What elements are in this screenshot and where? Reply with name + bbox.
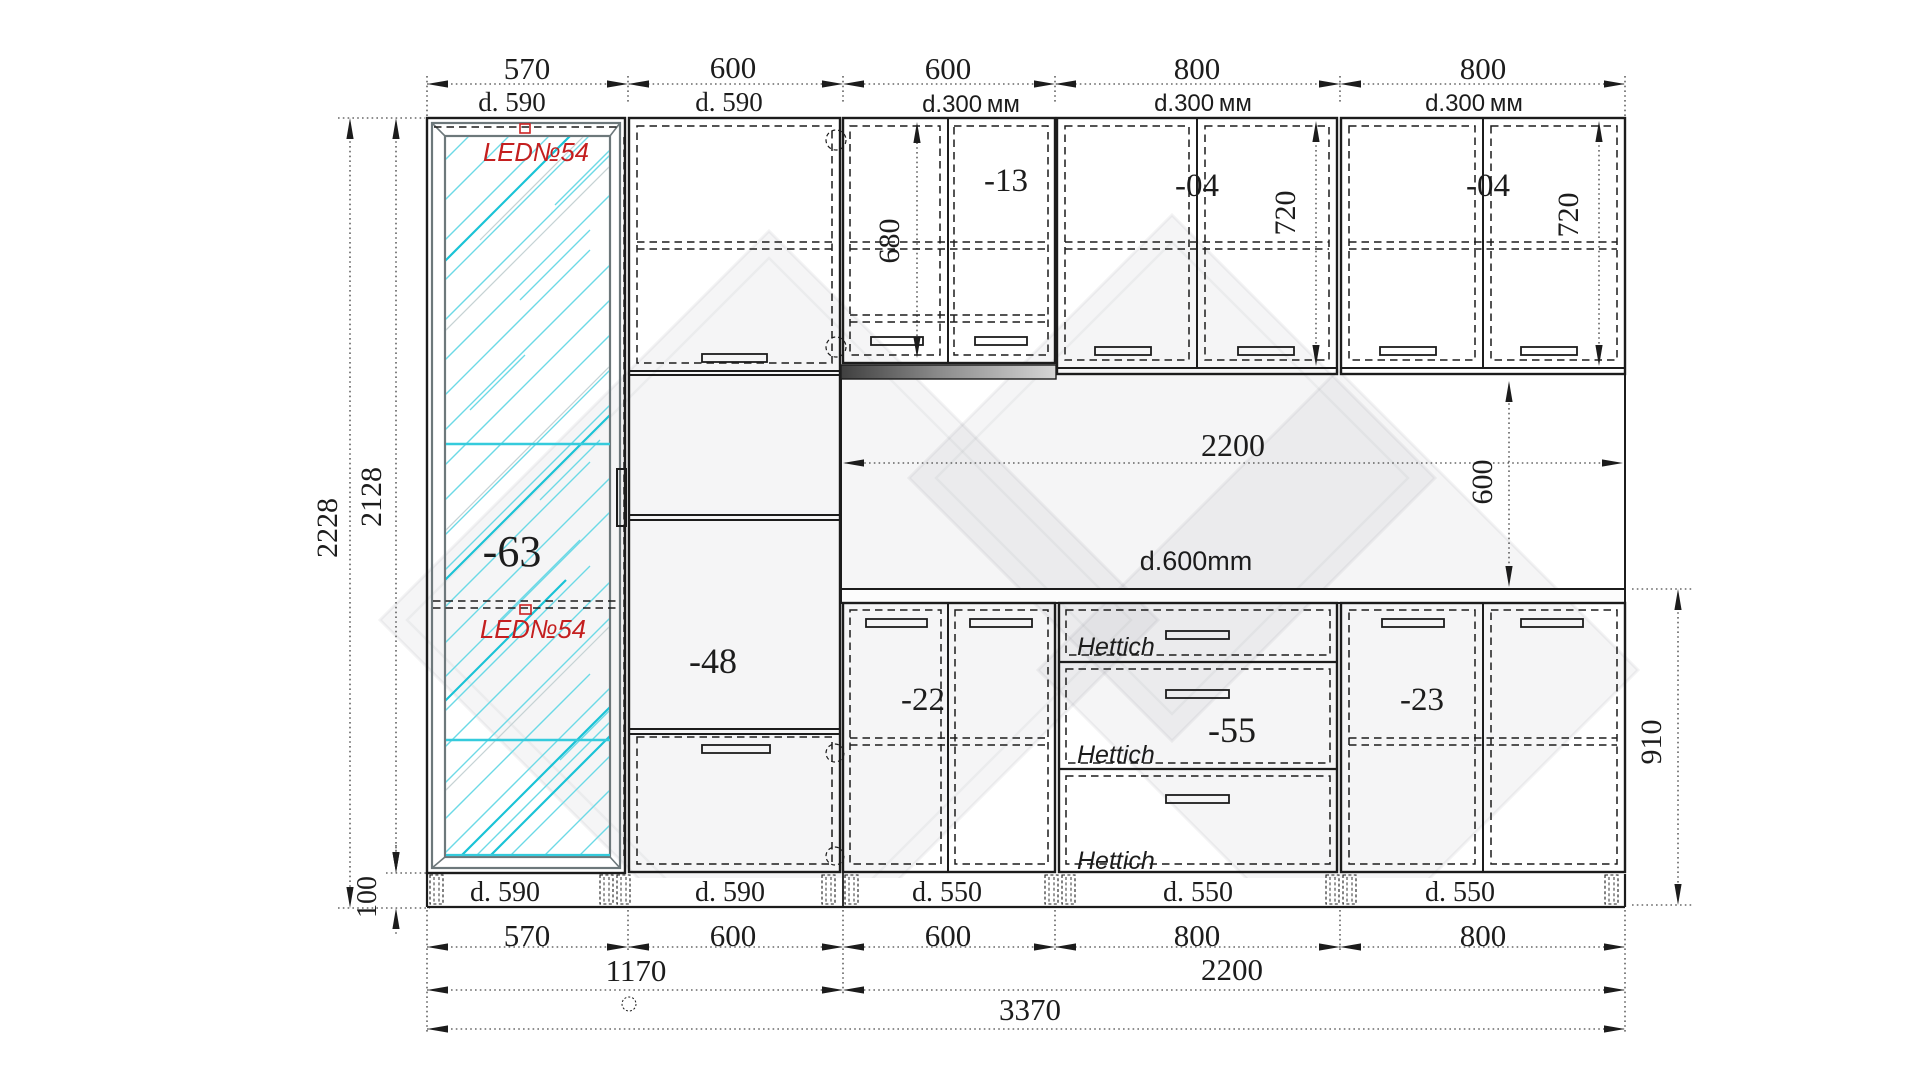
- svg-text:Hettich: Hettich: [1077, 741, 1155, 769]
- svg-text:800: 800: [1174, 51, 1221, 86]
- svg-text:-04: -04: [1466, 168, 1510, 204]
- svg-text:d. 550: d. 550: [1425, 877, 1495, 908]
- svg-text:d. 590: d. 590: [478, 87, 546, 117]
- svg-text:d.300 мм: d.300 мм: [922, 91, 1020, 118]
- svg-text:800: 800: [1174, 918, 1221, 953]
- svg-text:LED№54: LED№54: [483, 137, 589, 167]
- svg-text:-55: -55: [1208, 710, 1256, 750]
- svg-text:-23: -23: [1400, 682, 1444, 718]
- svg-text:100: 100: [352, 876, 383, 918]
- svg-text:910: 910: [1635, 720, 1668, 765]
- svg-text:600: 600: [925, 51, 972, 86]
- svg-text:720: 720: [1269, 191, 1302, 236]
- svg-text:Hettich: Hettich: [1077, 847, 1155, 875]
- svg-text:d.600mm: d.600mm: [1140, 546, 1253, 576]
- svg-text:-63: -63: [483, 527, 542, 576]
- svg-text:570: 570: [504, 918, 551, 953]
- svg-text:600: 600: [710, 918, 757, 953]
- svg-text:680: 680: [873, 219, 906, 264]
- svg-text:600: 600: [1466, 460, 1499, 505]
- svg-text:2200: 2200: [1201, 952, 1263, 987]
- svg-text:LED№54: LED№54: [480, 614, 586, 644]
- svg-text:800: 800: [1460, 918, 1507, 953]
- svg-text:Hettich: Hettich: [1077, 633, 1155, 661]
- svg-text:d. 550: d. 550: [1163, 877, 1233, 908]
- svg-text:-48: -48: [689, 641, 737, 681]
- svg-text:d.300 мм: d.300 мм: [1425, 90, 1523, 117]
- svg-text:d. 550: d. 550: [912, 877, 982, 908]
- svg-text:d.300 мм: d.300 мм: [1154, 90, 1252, 117]
- svg-text:600: 600: [710, 50, 757, 85]
- svg-text:d. 590: d. 590: [695, 87, 763, 117]
- svg-text:2228: 2228: [311, 498, 344, 558]
- svg-text:-22: -22: [901, 682, 945, 718]
- svg-text:720: 720: [1552, 193, 1585, 238]
- svg-text:-13: -13: [984, 163, 1028, 199]
- svg-text:3370: 3370: [999, 992, 1061, 1027]
- svg-text:800: 800: [1460, 51, 1507, 86]
- svg-text:-04: -04: [1175, 168, 1219, 204]
- svg-text:600: 600: [925, 918, 972, 953]
- svg-text:1170: 1170: [606, 953, 667, 988]
- svg-text:2128: 2128: [355, 467, 388, 527]
- svg-text:570: 570: [504, 51, 551, 86]
- svg-text:d. 590: d. 590: [695, 877, 765, 908]
- svg-text:2200: 2200: [1201, 427, 1265, 463]
- svg-text:d. 590: d. 590: [470, 877, 540, 908]
